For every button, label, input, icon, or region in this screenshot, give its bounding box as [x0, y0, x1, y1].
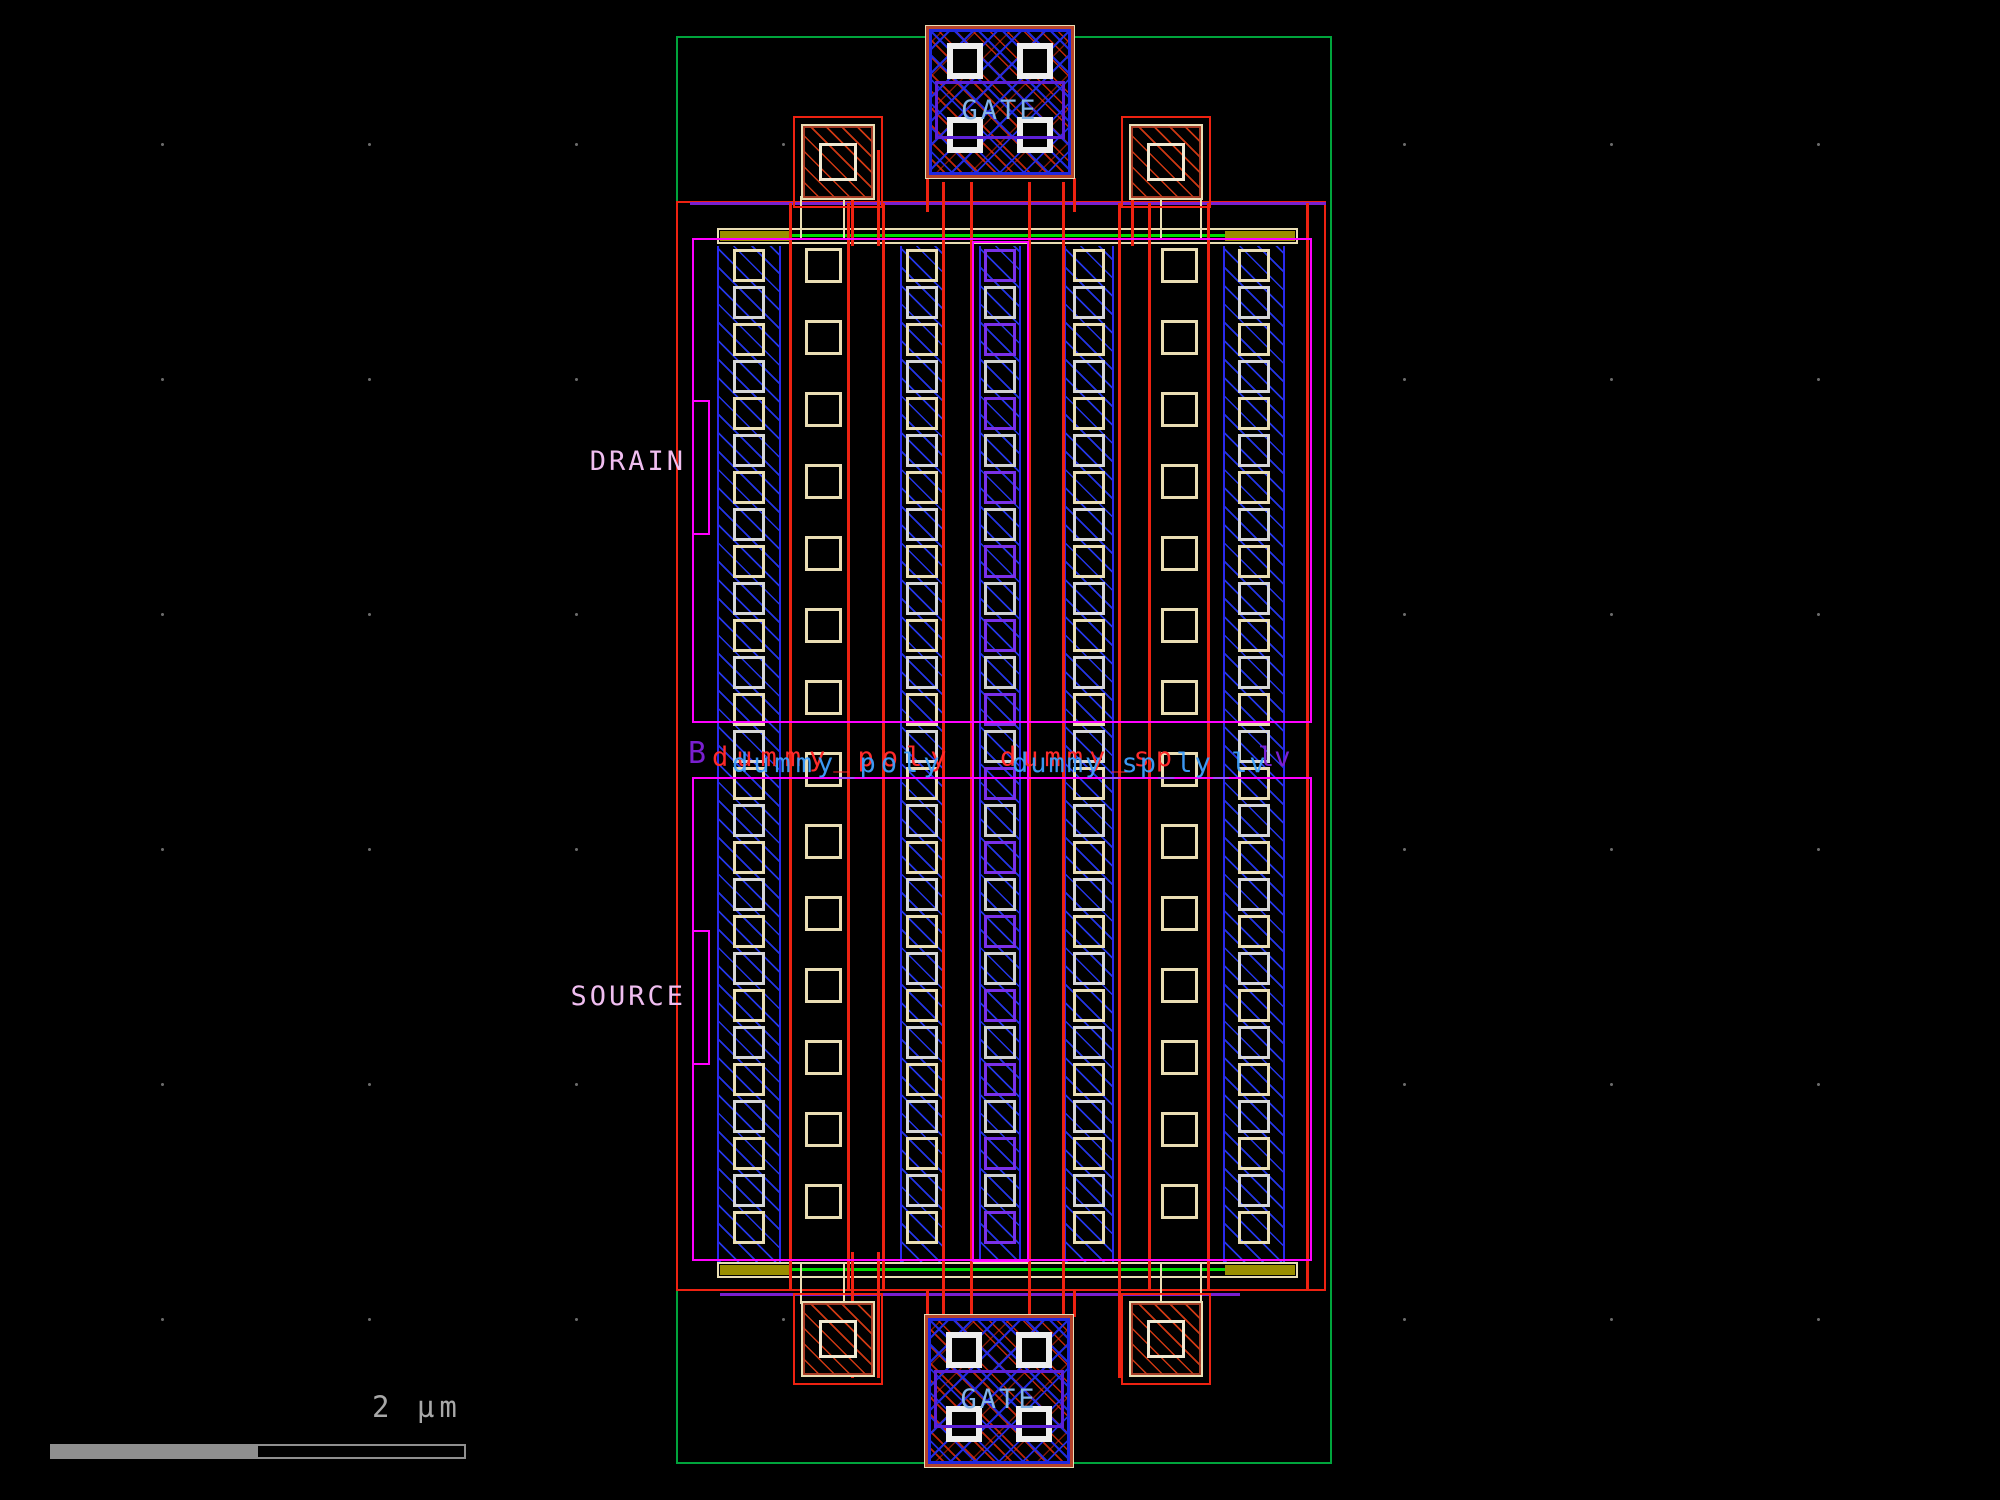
pad-via-contact [946, 1332, 982, 1368]
net-label-dummy-sp-blue[interactable]: dummy_sp_ly_lv [1012, 748, 1268, 779]
pad-via-contact [1017, 43, 1053, 79]
gate-pad-bottom[interactable]: GATE [925, 1315, 1073, 1467]
via-contact [819, 1320, 857, 1358]
drain-pin-tab[interactable] [692, 400, 710, 535]
drain-label[interactable]: DRAIN [556, 446, 686, 477]
olive-segment [1225, 1265, 1295, 1275]
metal-rail-top[interactable] [690, 202, 1326, 205]
pad-connector [926, 178, 929, 212]
layout-canvas[interactable]: GATE GATE DRAIN SOURCE B dummy_poly dumm… [0, 0, 2000, 1500]
olive-segment [720, 1265, 792, 1275]
gate-label-top[interactable]: GATE [961, 95, 1038, 126]
scale-bar-fill [52, 1446, 258, 1457]
via-pad[interactable] [1129, 124, 1203, 200]
via-pad[interactable] [1129, 1301, 1203, 1377]
via-contact [1147, 1320, 1185, 1358]
scale-label: 2 µm [372, 1390, 462, 1424]
via-pad[interactable] [801, 124, 875, 200]
gate-pad-band: GATE [934, 1370, 1064, 1428]
source-pin-tab[interactable] [692, 930, 710, 1065]
bottom-bus-bar[interactable] [717, 1262, 1298, 1278]
pad-via-contact [1016, 1332, 1052, 1368]
via-contact [819, 143, 857, 181]
pad-connector [1073, 1289, 1076, 1317]
source-label[interactable]: SOURCE [526, 981, 686, 1012]
pad-connector [1073, 178, 1076, 212]
pad-connector [926, 1289, 929, 1317]
net-label-b[interactable]: B [688, 736, 706, 771]
net-label-lv[interactable]: lv [1258, 742, 1291, 773]
net-label-dummy-poly-blue[interactable]: dummy_poly [732, 748, 945, 779]
pad-via-contact [947, 43, 983, 79]
via-contact [1147, 143, 1185, 181]
gate-pad-top[interactable]: GATE [926, 26, 1074, 178]
gate-label-bottom[interactable]: GATE [960, 1384, 1037, 1415]
scale-bar [50, 1444, 466, 1459]
via-pad[interactable] [801, 1301, 875, 1377]
gate-pad-band: GATE [935, 81, 1065, 139]
